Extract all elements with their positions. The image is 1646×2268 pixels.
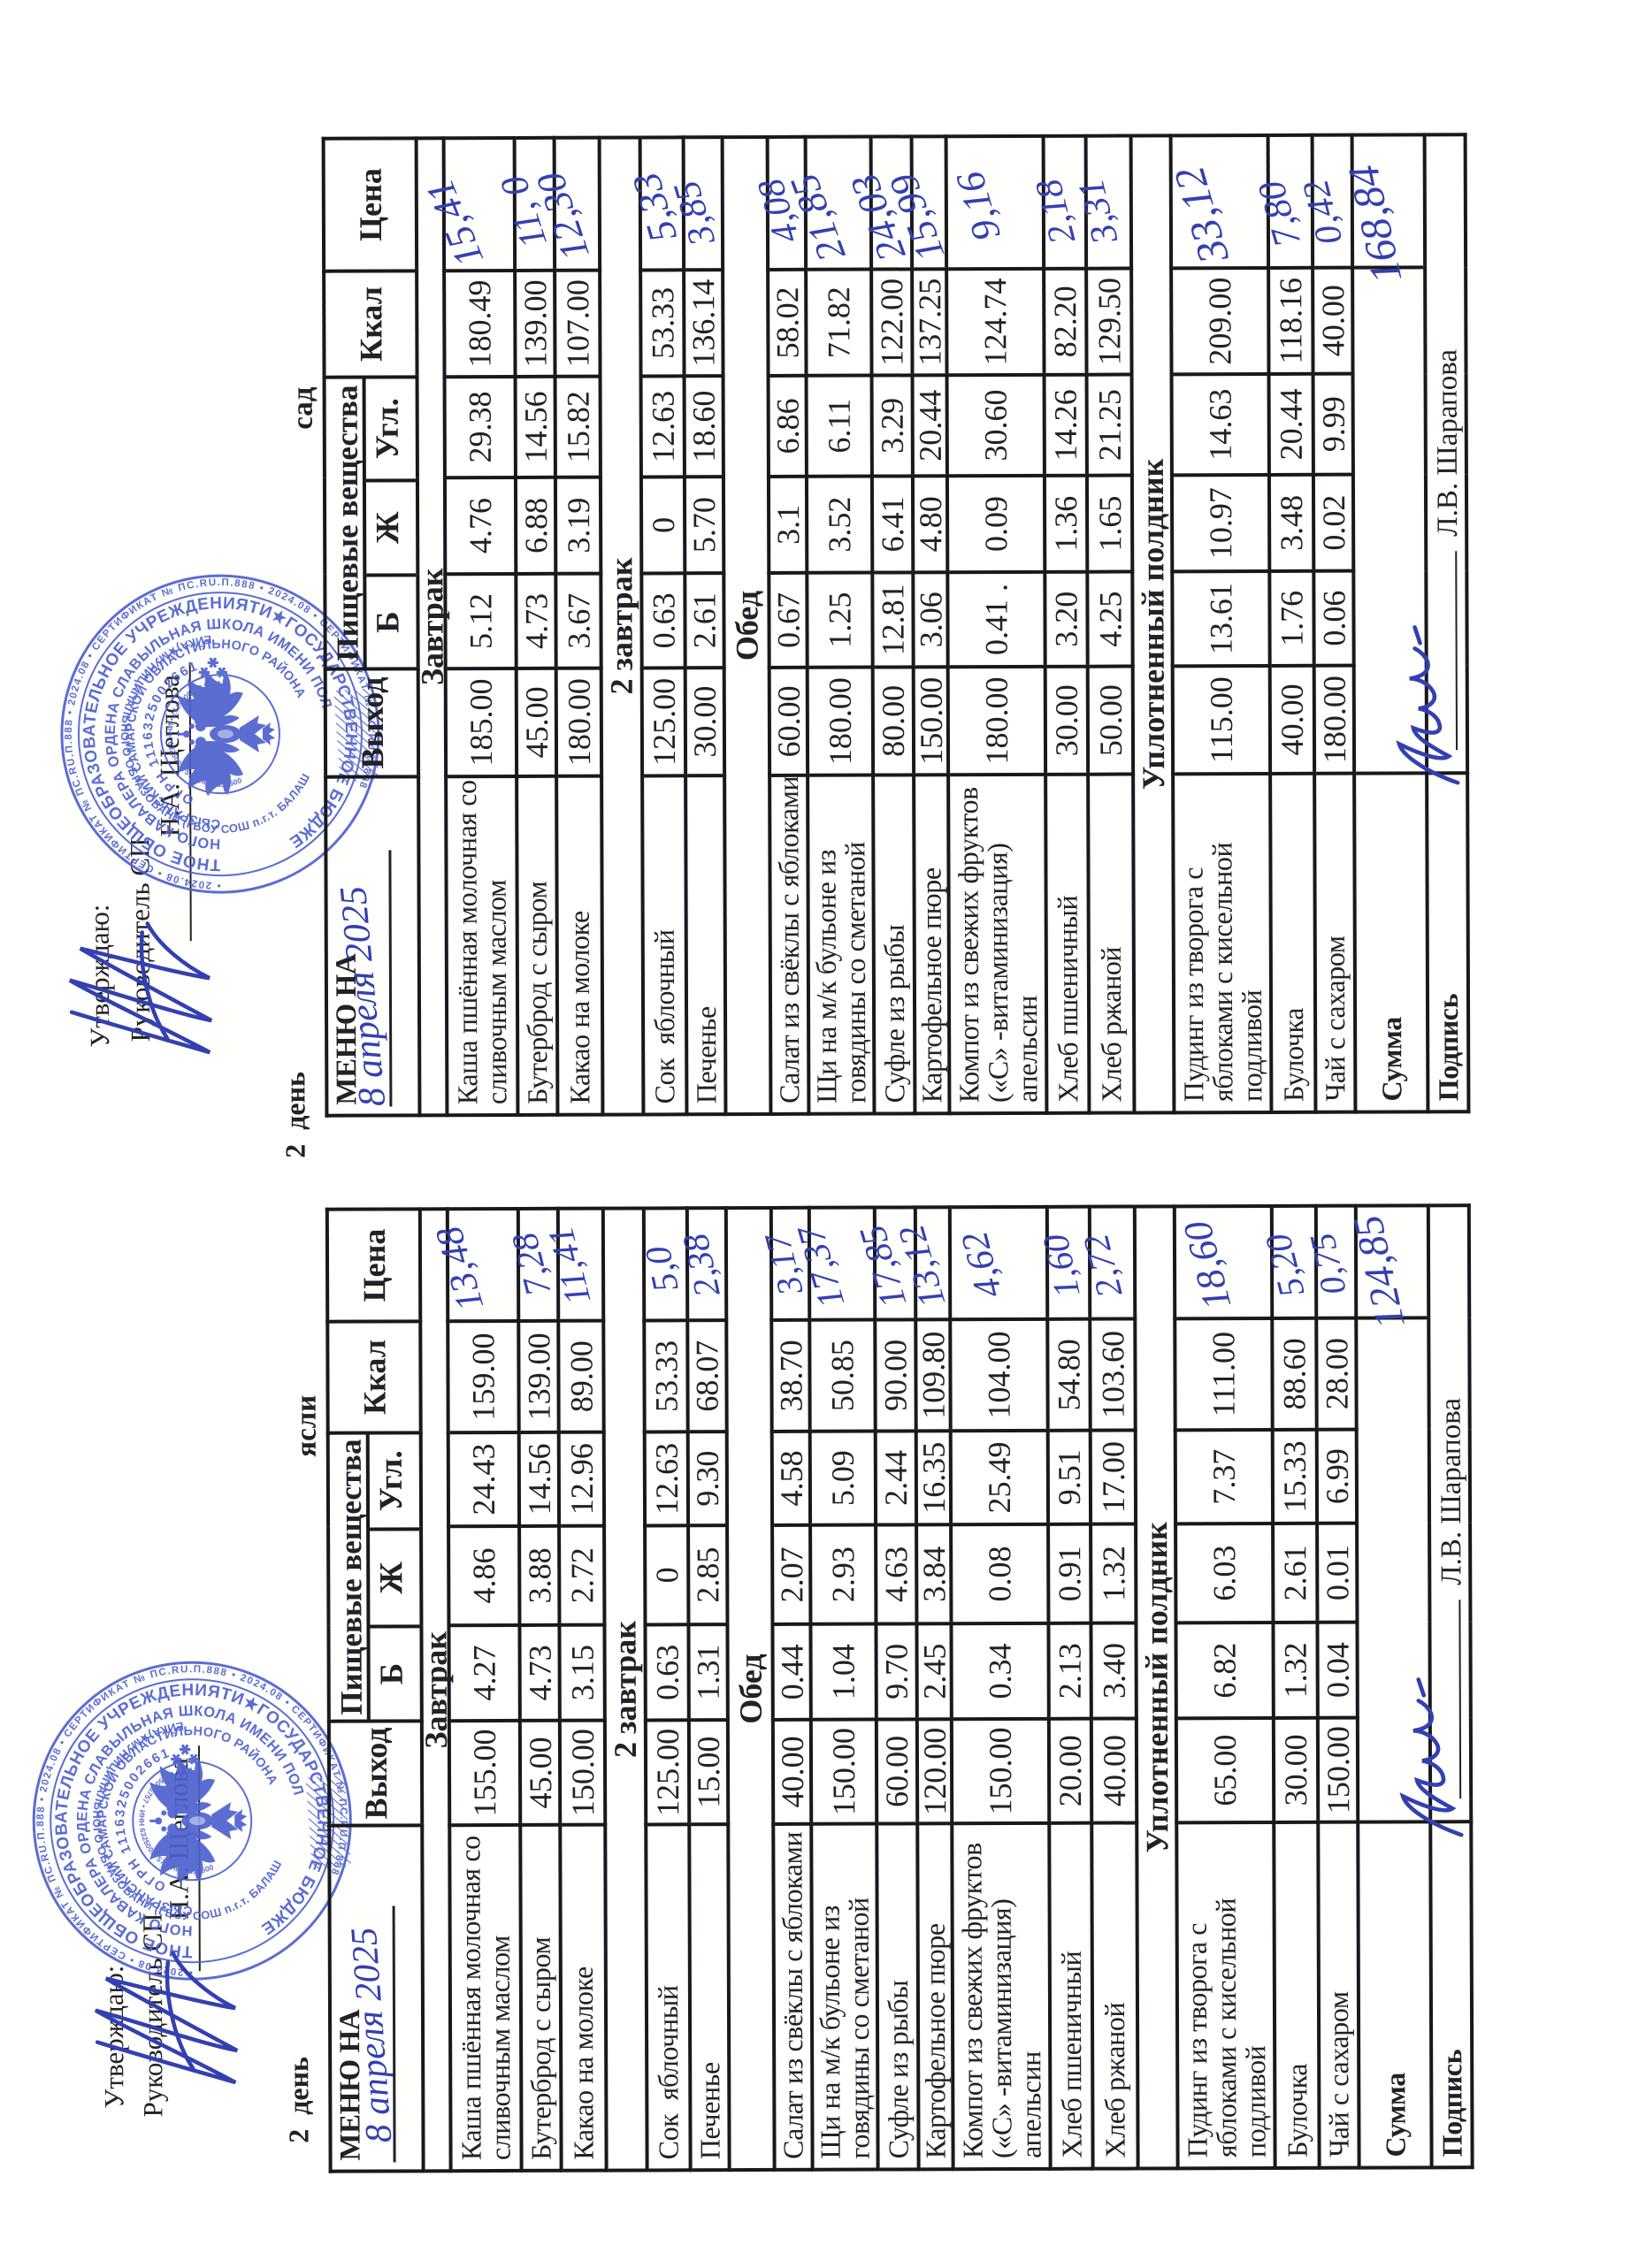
svg-text:✱: ✱ <box>207 657 222 668</box>
svg-text:✱: ✱ <box>179 1744 194 1755</box>
